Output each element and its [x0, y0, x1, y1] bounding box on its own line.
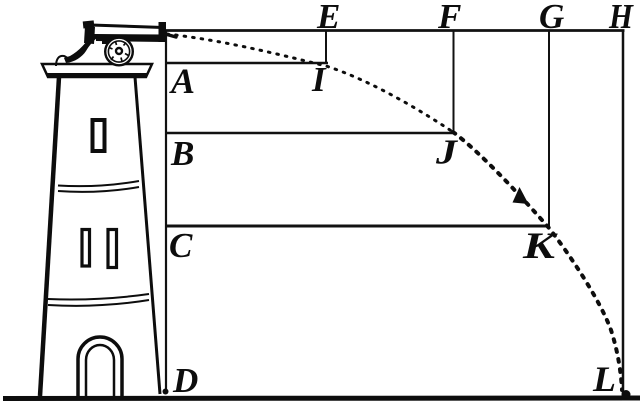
svg-text:L: L	[592, 359, 616, 399]
svg-text:E: E	[316, 0, 340, 36]
svg-text:D: D	[172, 361, 198, 400]
svg-text:G: G	[539, 0, 564, 36]
svg-text:J: J	[435, 133, 459, 172]
svg-text:H: H	[608, 0, 634, 36]
svg-text:K: K	[522, 226, 558, 267]
svg-text:A: A	[169, 61, 195, 101]
svg-text:F: F	[437, 0, 461, 36]
svg-text:B: B	[170, 134, 194, 173]
svg-text:I: I	[311, 60, 327, 99]
svg-text:C: C	[169, 226, 193, 265]
